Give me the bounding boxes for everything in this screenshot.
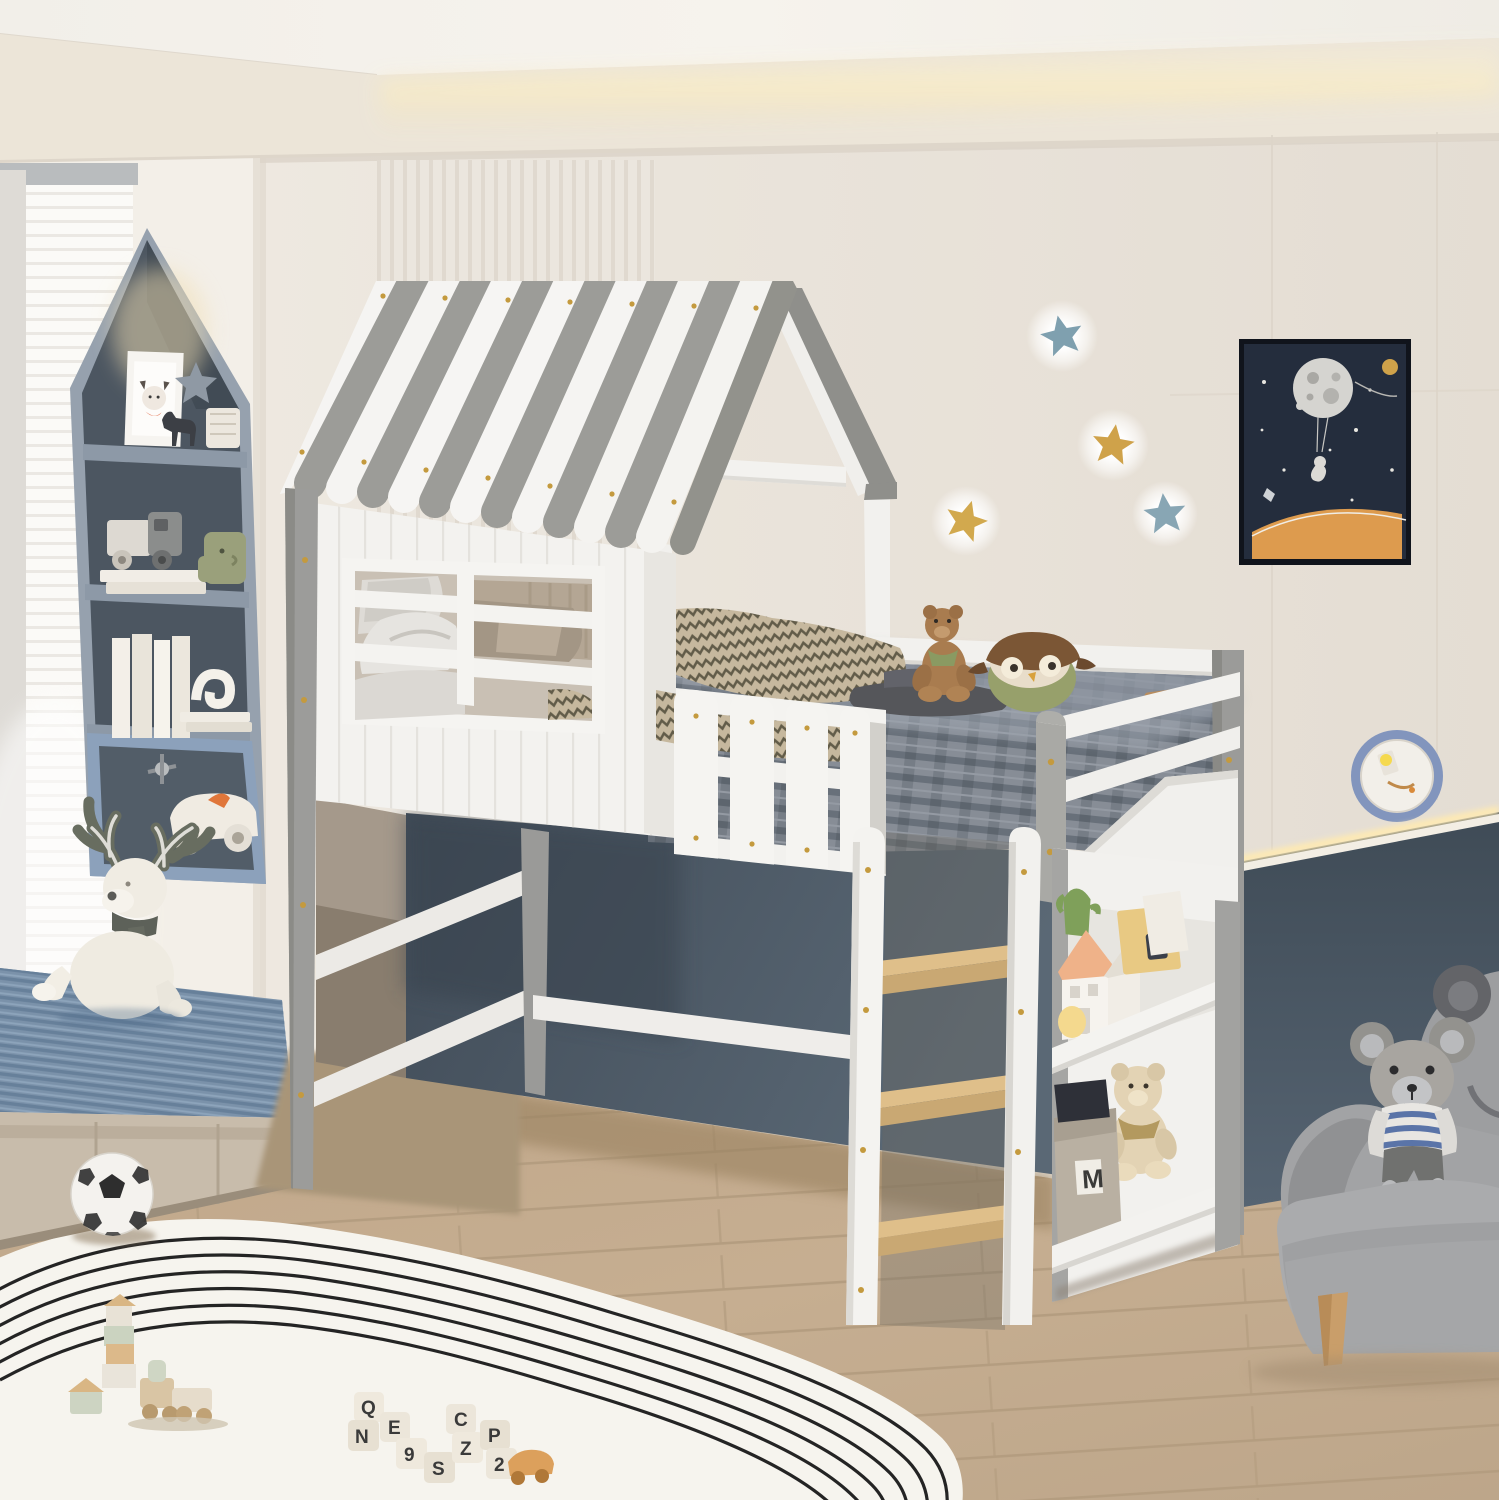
svg-text:S: S [432, 1459, 445, 1480]
svg-text:E: E [388, 1418, 401, 1439]
svg-text:2: 2 [494, 1455, 505, 1476]
svg-text:Q: Q [361, 1398, 376, 1419]
svg-text:C: C [454, 1410, 468, 1431]
svg-text:N: N [355, 1427, 369, 1448]
svg-text:M: M [1081, 1163, 1105, 1194]
svg-text:P: P [488, 1426, 501, 1447]
svg-text:9: 9 [404, 1445, 415, 1466]
svg-text:Z: Z [460, 1439, 472, 1460]
